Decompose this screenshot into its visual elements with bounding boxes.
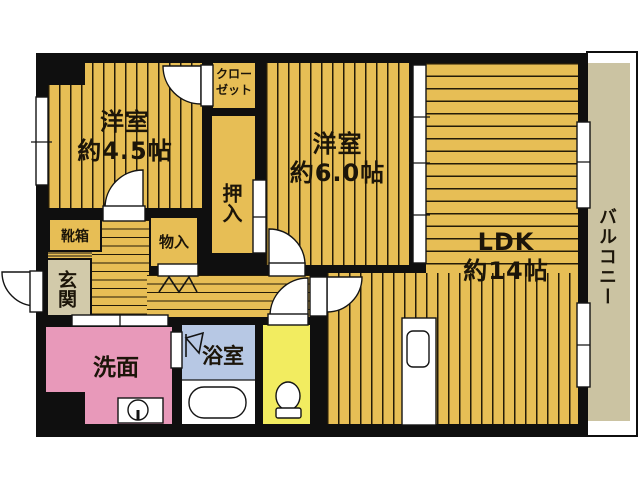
bathtub-zone bbox=[182, 380, 255, 424]
toilet-room-floor bbox=[263, 325, 310, 424]
ldk-living-floor bbox=[426, 63, 578, 273]
floor-plan: 洋室 約4.5帖 洋室 約6.0帖 LDK 約14帖 クロー ゼット 押入 物入… bbox=[0, 0, 640, 480]
hallway-floor-horizontal bbox=[147, 275, 310, 317]
entrance-floor bbox=[46, 258, 92, 317]
bathroom-floor bbox=[182, 325, 255, 380]
shoe-box bbox=[48, 218, 102, 252]
closet-floor bbox=[213, 63, 255, 108]
front-door-arc bbox=[2, 272, 36, 306]
room-western-6_0-floor bbox=[266, 63, 409, 265]
corner-wall-notch bbox=[48, 63, 85, 85]
washroom-wall-notch bbox=[46, 392, 85, 424]
ldk-dining-kitchen-floor bbox=[327, 273, 578, 424]
balcony-floor bbox=[588, 63, 630, 421]
oshiire-floor bbox=[212, 116, 255, 253]
